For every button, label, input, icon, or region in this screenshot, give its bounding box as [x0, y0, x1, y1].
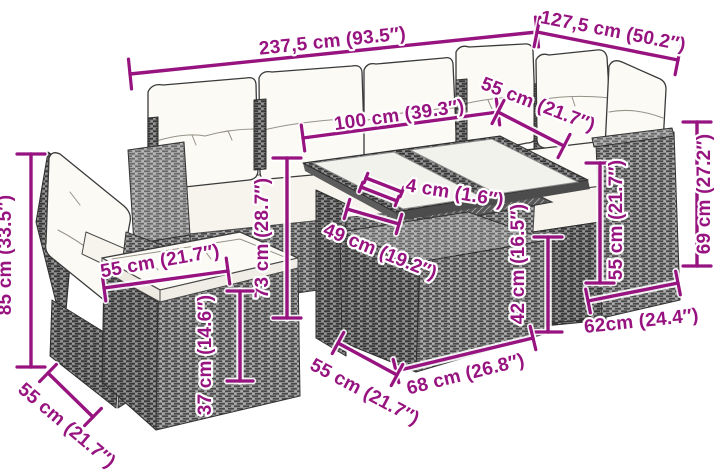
dimension-label-armrest-height: 55 cm (21.7″) [606, 160, 627, 281]
dimension-label-ottoman-base-height: 37 cm (14.6″) [195, 295, 216, 416]
dimension-label-chair-height: 85 cm (33.5″) [0, 195, 16, 316]
dimension-chair-height: 85 cm (33.5″) [0, 154, 45, 367]
dimension-label-table-height: 73 cm (28.7″) [252, 178, 273, 299]
dimension-label-backrest-height: 69 cm (27.2″) [694, 134, 715, 255]
dimension-diagram: 237,5 cm (93.5″)127,5 cm (50.2″)100 cm (… [0, 0, 720, 475]
sofa-left-armrest [128, 142, 190, 244]
dimension-backrest-height: 69 cm (27.2″) [683, 122, 715, 266]
frame-post [254, 99, 266, 170]
dimension-label-footstool-height: 42 cm (16.5″) [508, 204, 529, 325]
